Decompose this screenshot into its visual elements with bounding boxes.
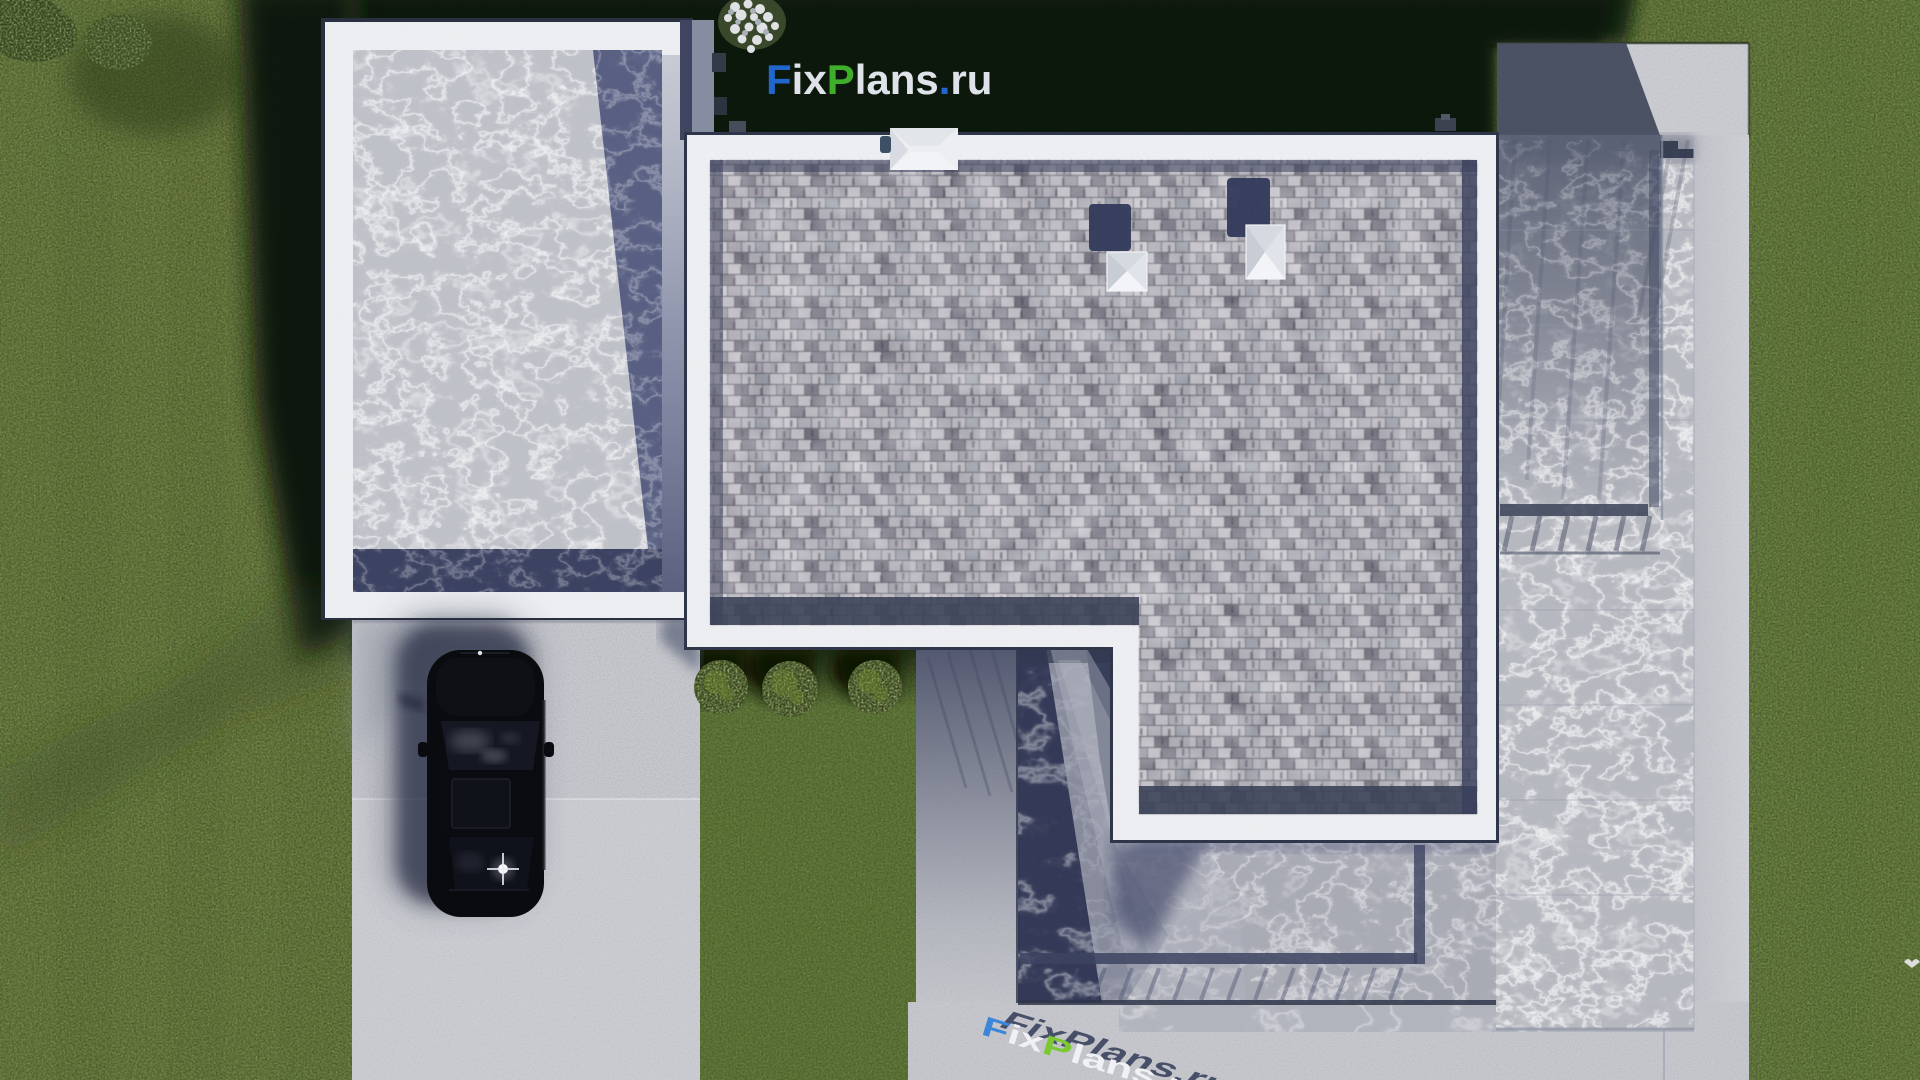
svg-text:FixPlans.ru: FixPlans.ru bbox=[766, 56, 992, 103]
